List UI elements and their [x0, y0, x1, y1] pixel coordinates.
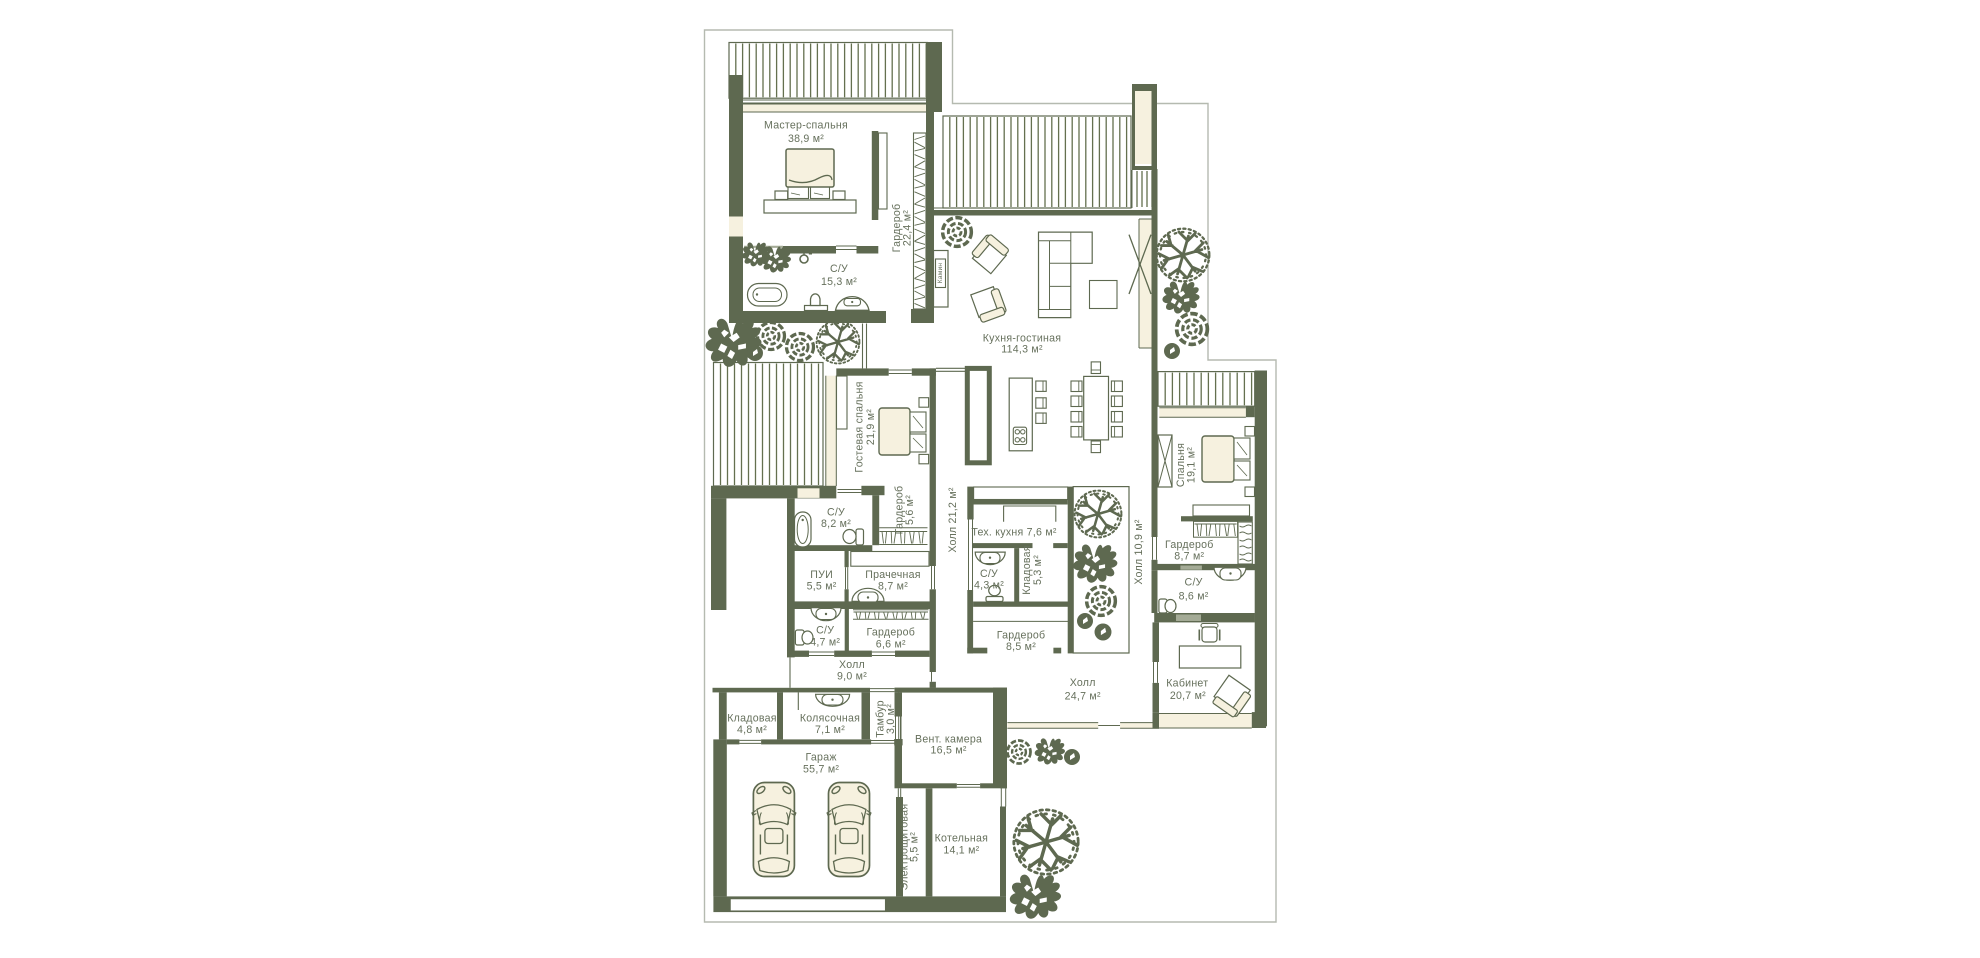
- svg-text:Тех. кухня 7,6 м²: Тех. кухня 7,6 м²: [971, 526, 1057, 538]
- svg-text:8,2 м²: 8,2 м²: [821, 518, 851, 530]
- svg-text:Вент. камера: Вент. камера: [915, 733, 982, 745]
- svg-text:19,1 м²: 19,1 м²: [1186, 447, 1198, 483]
- svg-text:С/У: С/У: [1185, 576, 1203, 588]
- svg-text:Прачечная: Прачечная: [865, 569, 920, 581]
- svg-text:5,5 м²: 5,5 м²: [909, 832, 921, 862]
- svg-text:Гараж: Гараж: [806, 752, 838, 764]
- svg-text:С/У: С/У: [827, 507, 845, 519]
- svg-text:8,7 м²: 8,7 м²: [1174, 550, 1204, 562]
- svg-text:Холл 10,9 м²: Холл 10,9 м²: [1133, 519, 1145, 585]
- svg-text:Колясочная: Колясочная: [800, 712, 860, 724]
- svg-text:38,9 м²: 38,9 м²: [788, 133, 824, 145]
- svg-text:Котельная: Котельная: [935, 833, 989, 845]
- svg-text:5,6 м²: 5,6 м²: [904, 495, 916, 525]
- svg-text:4,7 м²: 4,7 м²: [810, 636, 840, 648]
- svg-text:Кладовая: Кладовая: [727, 712, 776, 724]
- svg-text:Мастер-спальня: Мастер-спальня: [764, 120, 848, 132]
- svg-text:С/У: С/У: [980, 568, 998, 580]
- svg-text:24,7 м²: 24,7 м²: [1065, 691, 1101, 703]
- svg-text:Кабинет: Кабинет: [1166, 678, 1208, 690]
- svg-text:8,6 м²: 8,6 м²: [1179, 590, 1209, 602]
- svg-text:Камин: Камин: [937, 263, 944, 284]
- svg-text:Кухня-гостиная: Кухня-гостиная: [983, 332, 1061, 344]
- svg-text:Гостевая спальня: Гостевая спальня: [854, 381, 866, 472]
- svg-text:Гардероб: Гардероб: [866, 627, 915, 639]
- svg-text:9,0 м²: 9,0 м²: [837, 671, 867, 683]
- svg-text:С/У: С/У: [830, 263, 848, 275]
- svg-text:55,7 м²: 55,7 м²: [803, 763, 839, 775]
- svg-text:8,5 м²: 8,5 м²: [1006, 641, 1036, 653]
- svg-text:4,3 м²: 4,3 м²: [974, 579, 1004, 591]
- svg-text:16,5 м²: 16,5 м²: [931, 745, 967, 757]
- svg-text:6,6 м²: 6,6 м²: [876, 639, 906, 651]
- svg-text:5,5 м²: 5,5 м²: [807, 580, 837, 592]
- svg-text:114,3 м²: 114,3 м²: [1001, 344, 1043, 356]
- svg-text:Гардероб: Гардероб: [1165, 539, 1214, 551]
- svg-text:21,9 м²: 21,9 м²: [865, 409, 877, 445]
- svg-text:22,4 м²: 22,4 м²: [902, 210, 914, 246]
- svg-text:20,7 м²: 20,7 м²: [1170, 690, 1206, 702]
- svg-text:15,3 м²: 15,3 м²: [821, 276, 857, 288]
- svg-text:С/У: С/У: [816, 625, 834, 637]
- svg-text:Холл: Холл: [1070, 677, 1096, 689]
- svg-text:3,0 м²: 3,0 м²: [885, 704, 897, 734]
- svg-text:Холл: Холл: [839, 659, 865, 671]
- svg-text:8,7 м²: 8,7 м²: [878, 580, 908, 592]
- svg-text:ПУИ: ПУИ: [810, 569, 833, 581]
- svg-text:Гардероб: Гардероб: [997, 629, 1046, 641]
- svg-text:14,1 м²: 14,1 м²: [943, 844, 979, 856]
- svg-text:7,1 м²: 7,1 м²: [815, 724, 845, 736]
- svg-text:5,3 м²: 5,3 м²: [1032, 555, 1044, 585]
- svg-text:Холл 21,2 м²: Холл 21,2 м²: [947, 487, 959, 553]
- svg-text:4,8 м²: 4,8 м²: [737, 724, 767, 736]
